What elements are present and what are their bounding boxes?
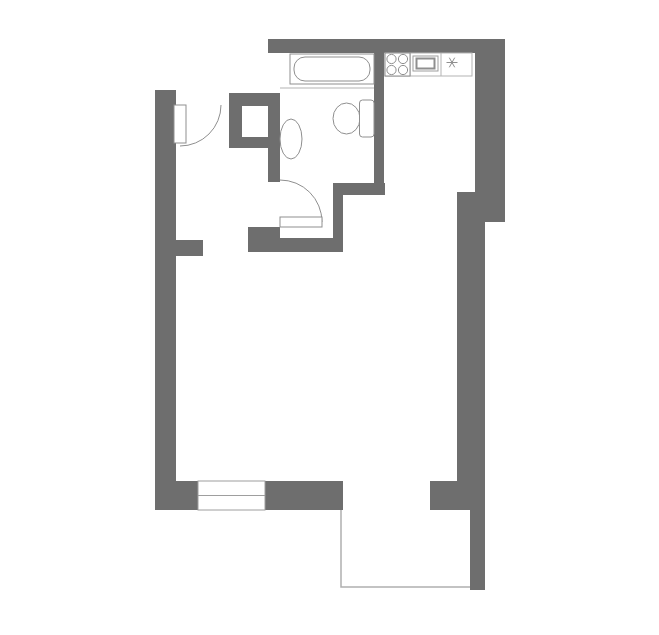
entry-door-leaf <box>174 105 186 143</box>
wall-top <box>268 39 505 53</box>
wall-left <box>155 90 176 483</box>
toilet-bowl <box>333 103 360 134</box>
wall-bath-bottom <box>248 238 343 252</box>
bathroom-door-arc <box>280 180 322 222</box>
bathtub-inner <box>294 57 370 81</box>
floor-plan <box>0 0 659 635</box>
wall-bath-door-stub <box>248 227 280 238</box>
wall-bottom-right <box>430 481 485 510</box>
stove-burner-2 <box>398 54 407 63</box>
stove-burner-1 <box>387 54 396 63</box>
wall-right-step <box>457 192 505 222</box>
wall-shaft-bottom <box>229 137 268 148</box>
bathroom-door-leaf <box>280 217 322 227</box>
wall-bathroom-left <box>268 93 280 182</box>
stove-burner-4 <box>398 65 407 74</box>
sink <box>280 119 302 159</box>
wall-right-upper <box>475 53 505 192</box>
floor-plan-drawing <box>0 0 659 635</box>
wall-left-stub <box>176 240 203 256</box>
balcony-outline <box>341 510 470 587</box>
oven-inner <box>417 59 435 69</box>
wall-right-main <box>457 222 485 483</box>
wall-balcony-right <box>470 510 485 590</box>
wall-bath-kitchen-vert <box>333 195 343 240</box>
toilet-tank <box>360 100 375 137</box>
wall-bath-kitchen-divider <box>374 53 384 195</box>
stove-burner-3 <box>387 65 396 74</box>
